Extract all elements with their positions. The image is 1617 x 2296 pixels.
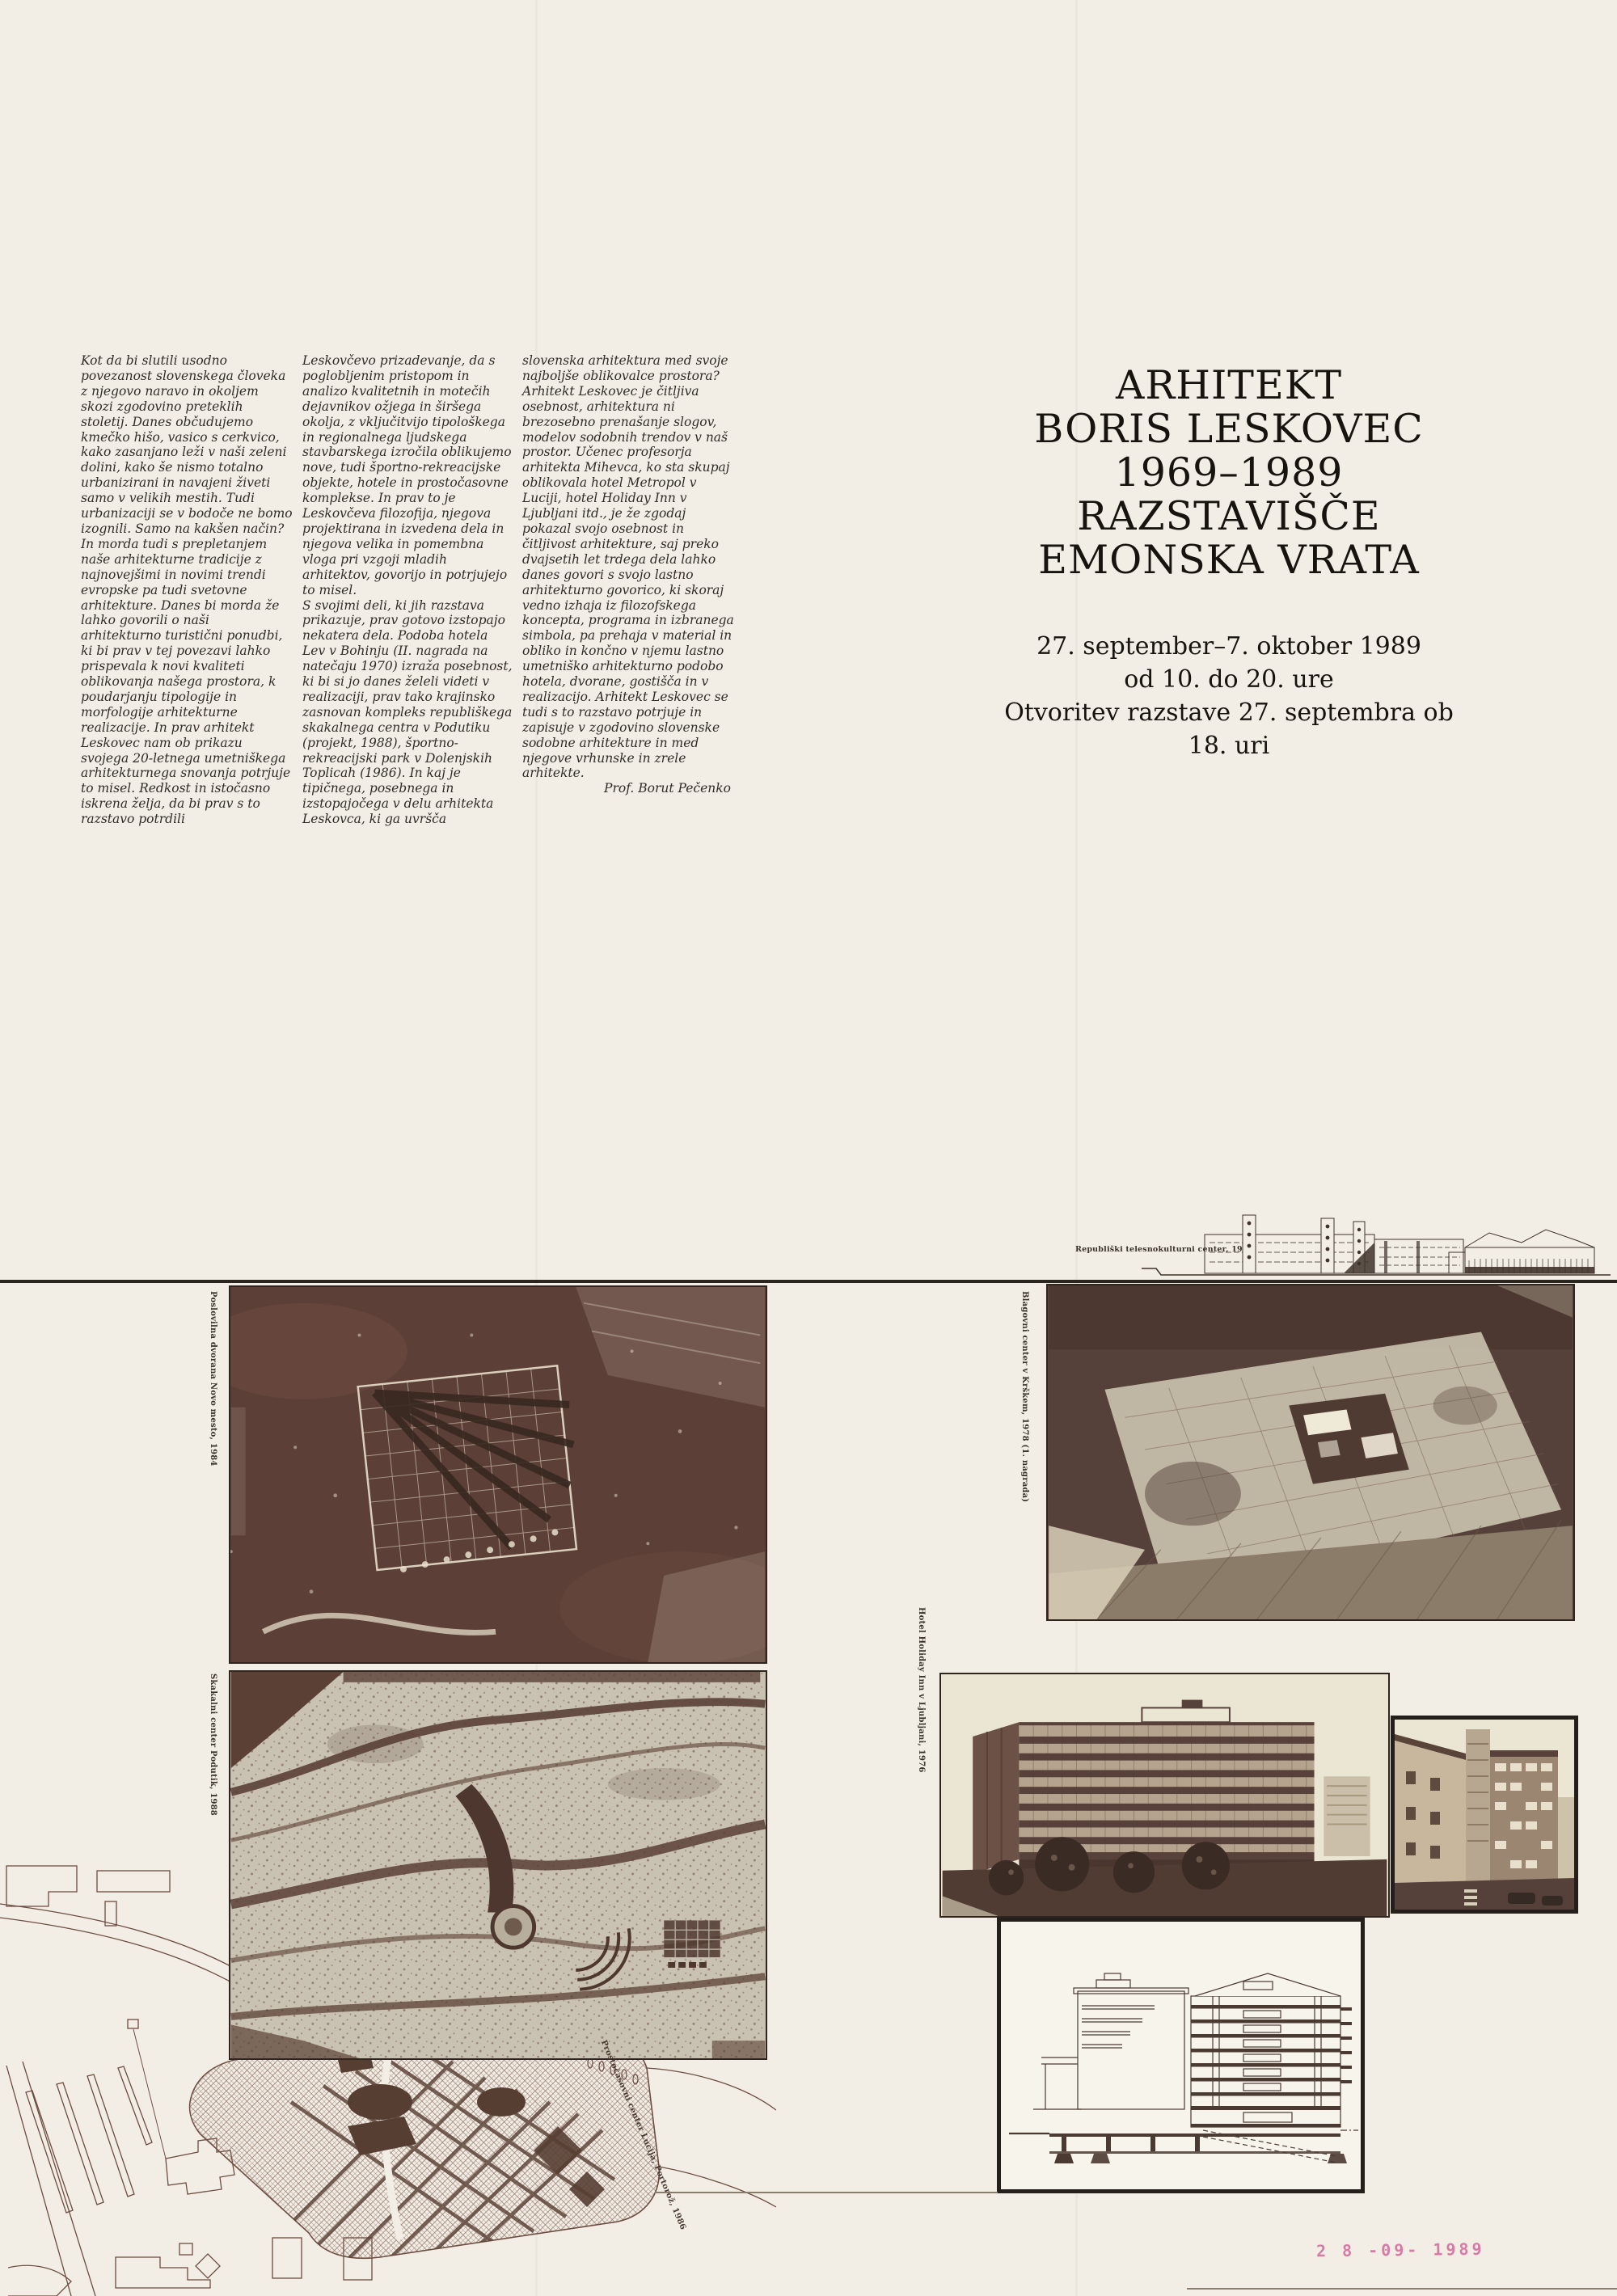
title-line: ARHITEKT — [857, 364, 1601, 407]
exhibition-poster: Kot da bi slutili usodno povezanost slov… — [0, 0, 1617, 2296]
essay-text: Leskovčevo prizadevanje, da s poglobljen… — [302, 353, 514, 598]
title-line: 1969–1989 — [857, 451, 1601, 495]
essay-text: Kot da bi slutili usodno povezanost slov… — [81, 353, 293, 827]
schedule-line: 18. uri — [841, 729, 1617, 762]
poster-title: ARHITEKT BORIS LESKOVEC 1969–1989 RAZSTA… — [857, 364, 1601, 582]
title-line: BORIS LESKOVEC — [857, 407, 1601, 451]
elevation-drawing — [1142, 1210, 1611, 1280]
photo-caption-blagovni: Blagovni center v Krškem, 1978 (1. nagra… — [1020, 1291, 1028, 1502]
horizontal-rule-top — [0, 1280, 1617, 1283]
title-line: EMONSKA VRATA — [857, 538, 1601, 582]
essay-column-2: Leskovčevo prizadevanje, da s poglobljen… — [302, 353, 514, 827]
exhibition-schedule: 27. september–7. oktober 1989 od 10. do … — [841, 630, 1617, 762]
photo-caption-skakalni: Skakalni center Podutik, 1988 — [209, 1673, 217, 1816]
essay-column-1: Kot da bi slutili usodno povezanost slov… — [81, 353, 293, 827]
photo-poslovilna-dvorana — [229, 1285, 767, 1664]
section-drawing — [997, 1918, 1365, 2193]
title-line: RAZSTAVIŠČE — [857, 495, 1601, 538]
essay-text: slovenska arhitektura med svoje najboljš… — [522, 353, 734, 781]
horizontal-rule-mid — [655, 2192, 998, 2193]
photo-caption-holiday-inn: Hotel Holiday Inn v Ljubljani, 1976 — [917, 1607, 925, 1773]
schedule-line: od 10. do 20. ure — [841, 663, 1617, 696]
photo-skakalni-center — [229, 1670, 767, 2060]
essay-text: S svojimi deli, ki jih razstava prikazuj… — [302, 598, 514, 828]
photo-holiday-inn — [939, 1673, 1390, 1918]
horizontal-rule-bottom — [1187, 2288, 1617, 2290]
photo-blagovni-center — [1046, 1284, 1575, 1621]
date-stamp: 2 8 -09- 1989 — [1316, 2239, 1485, 2261]
schedule-line: 27. september–7. oktober 1989 — [841, 630, 1617, 663]
schedule-line: Otvoritev razstave 27. septembra ob — [841, 696, 1617, 729]
photo-caption-poslovilna: Poslovilna dvorana Novo mesto, 1984 — [209, 1291, 217, 1467]
author-signature: Prof. Borut Pečenko — [522, 781, 734, 796]
photo-street-view — [1391, 1716, 1578, 1914]
essay-column-3: slovenska arhitektura med svoje najboljš… — [522, 353, 734, 796]
